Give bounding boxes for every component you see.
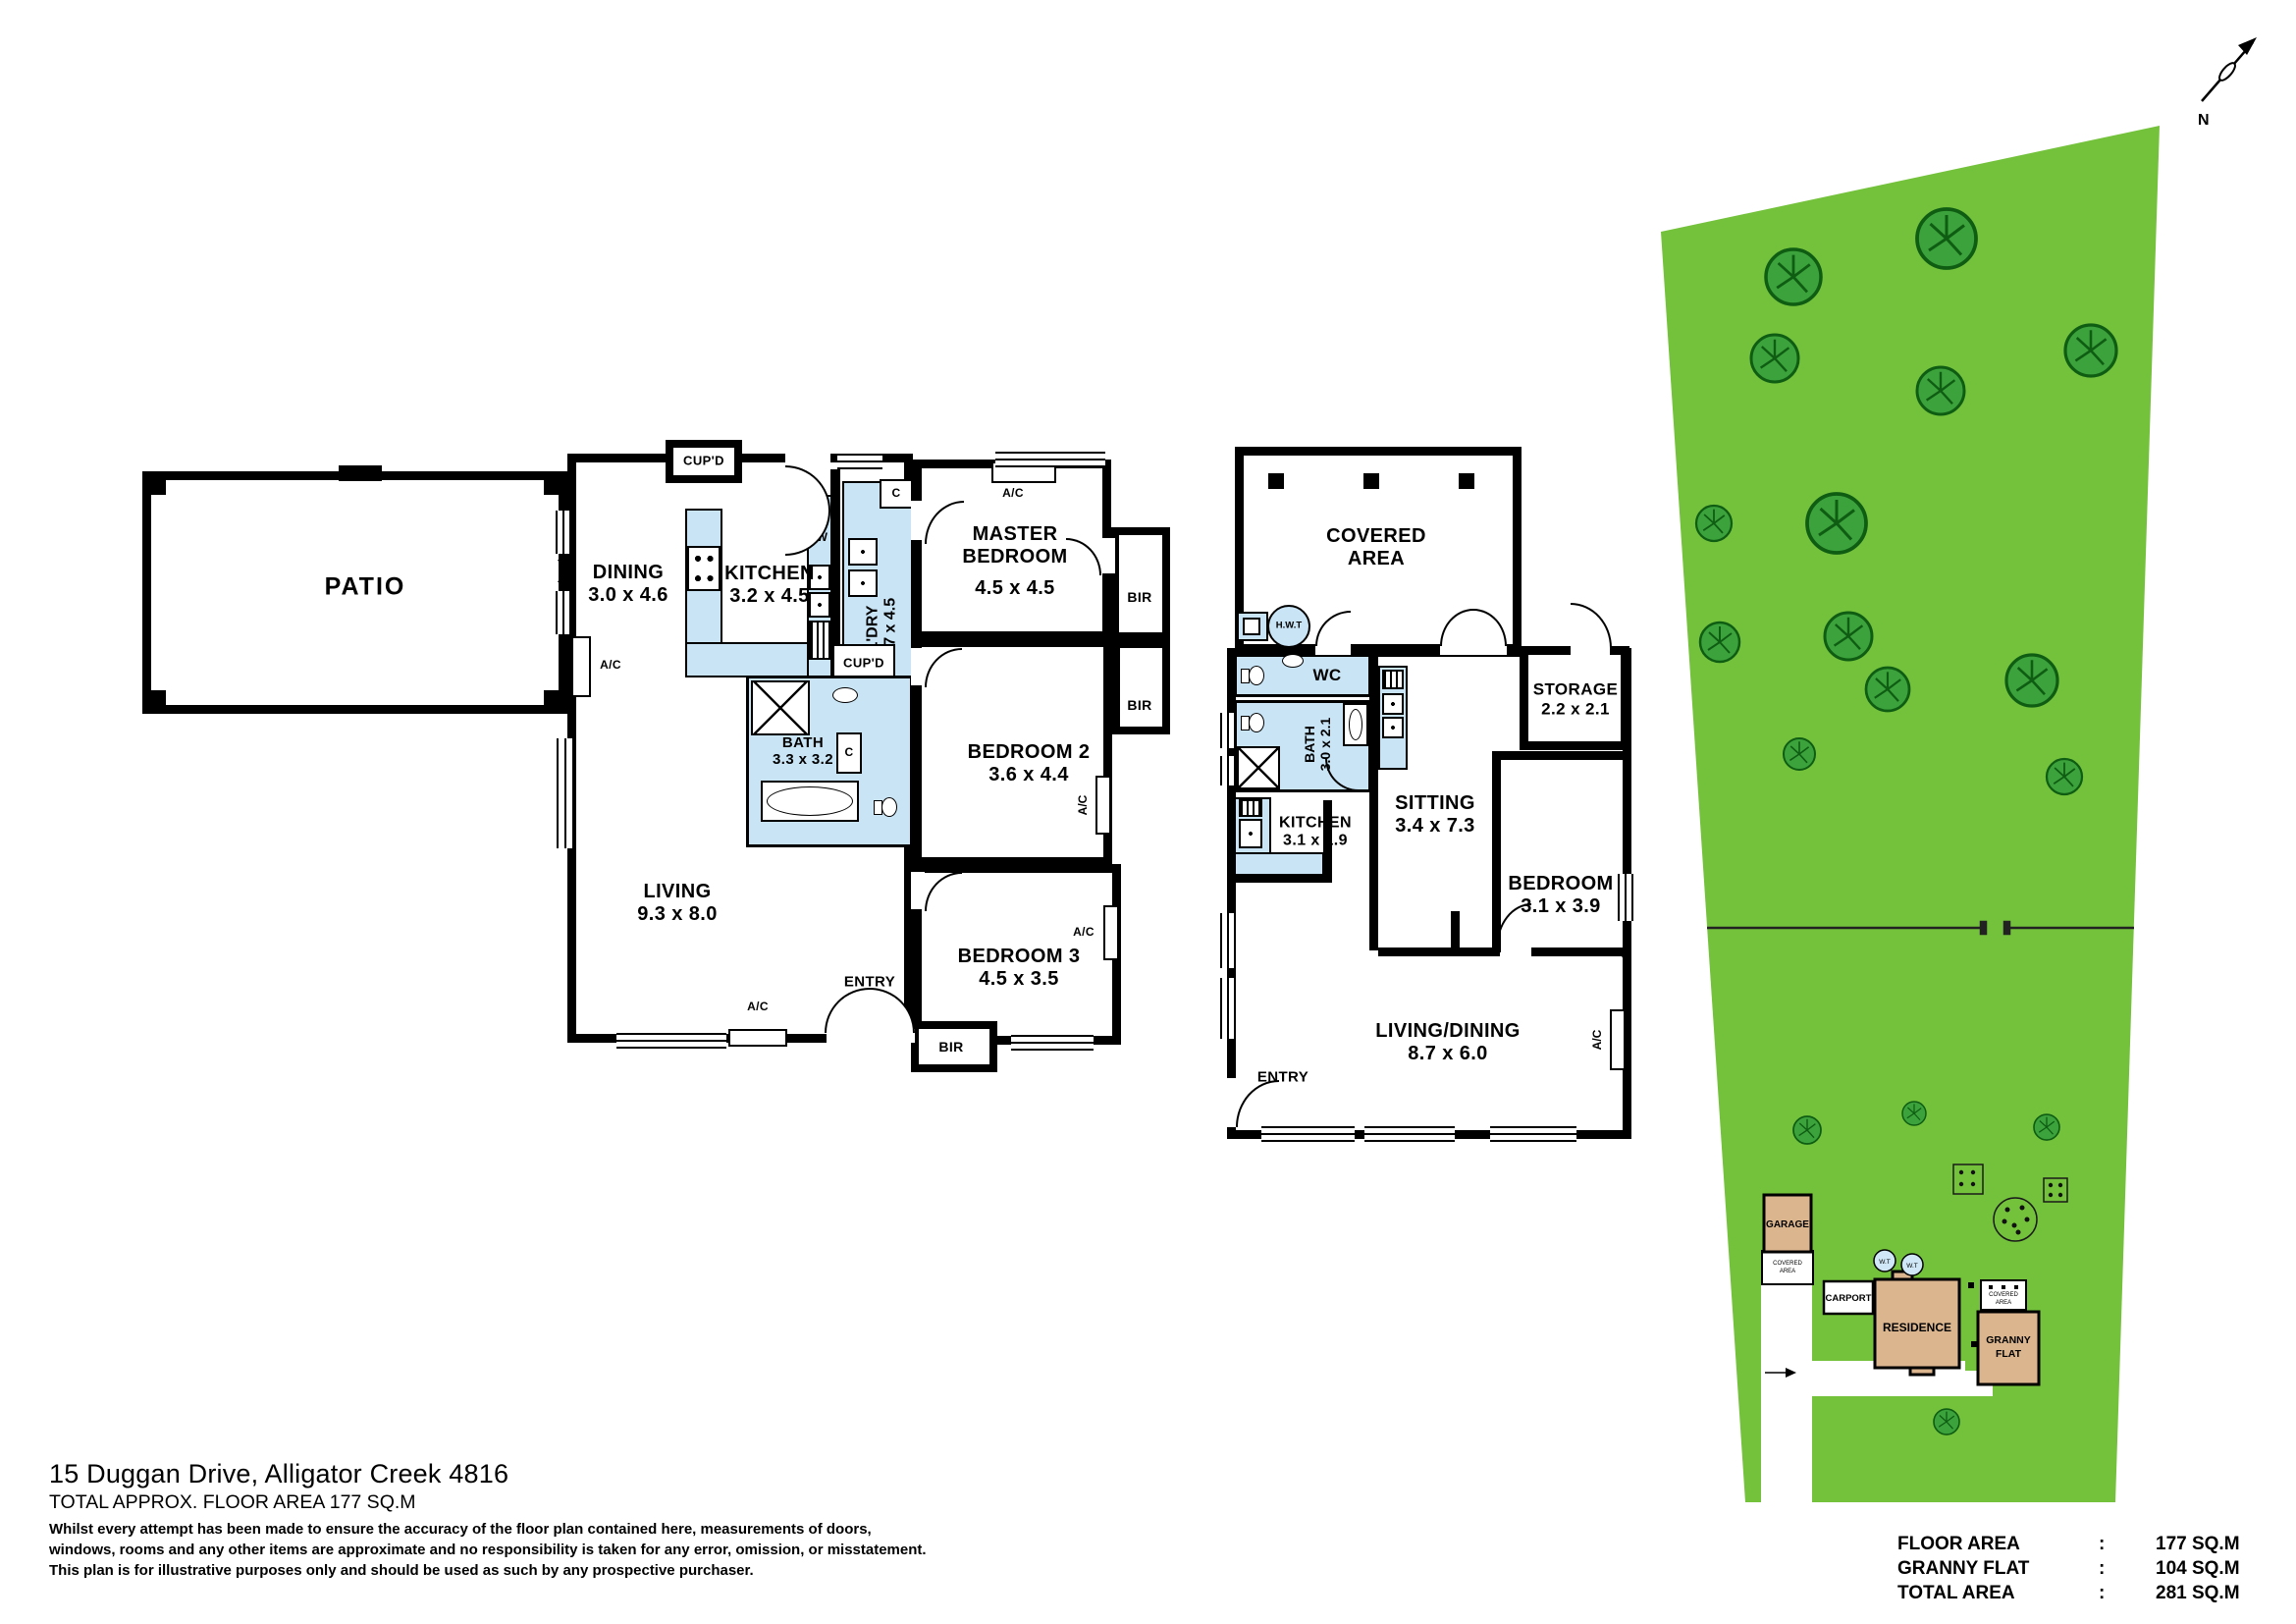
sitting-dim: 3.4 x 7.3 [1395, 815, 1475, 838]
stove-icon [687, 546, 721, 591]
areas-sep: : [2099, 1534, 2156, 1555]
ac-unit [1610, 1009, 1626, 1070]
wall [1451, 911, 1460, 956]
bir-bed3-label: BIR [938, 1039, 963, 1055]
window [1618, 874, 1633, 921]
total-area-line: TOTAL APPROX. FLOOR AREA 177 SQ.M [49, 1491, 416, 1514]
garage-label: GARAGE [1766, 1219, 1809, 1230]
granny-bedroom-label: BEDROOM 3.1 x 3.9 [1508, 873, 1613, 918]
window [616, 1033, 726, 1049]
door-gap [911, 648, 925, 685]
toilet-icon [874, 797, 899, 817]
disclaimer-line1: Whilst every attempt has been made to en… [49, 1519, 927, 1540]
wall-block [142, 690, 166, 714]
ac-bed2-label: A/C [1077, 795, 1091, 816]
granny-living-dim: 8.7 x 6.0 [1375, 1043, 1520, 1065]
dining-label: DINING 3.0 x 4.6 [588, 562, 667, 607]
window [1011, 1035, 1094, 1051]
areas-sep: : [2099, 1558, 2156, 1580]
ac-unit [571, 636, 591, 697]
window [1364, 1126, 1455, 1142]
granny-flat-label2: FLAT [1996, 1348, 2022, 1360]
garage-covered-area [1762, 1251, 1813, 1284]
areas-table: FLOOR AREA : 177 SQ.M GRANNY FLAT : 104 … [1897, 1532, 2283, 1605]
tree-icon [1807, 494, 1866, 553]
bir-master-room [1111, 527, 1170, 640]
arrow-down-icon [1621, 954, 1630, 963]
cupboard-c-label: C [891, 487, 900, 501]
wall-block [544, 690, 567, 714]
sitting-name: SITTING [1395, 792, 1475, 815]
tree-icon [1917, 367, 1964, 414]
wc-basin-icon [1282, 654, 1304, 668]
window [837, 454, 882, 469]
tree-icon [2065, 325, 2116, 376]
window [556, 591, 571, 634]
window [556, 511, 571, 554]
kitchen-label: KITCHEN 3.2 x 4.5 [724, 563, 815, 608]
ac-bed3-label: A/C [1073, 926, 1095, 940]
compass-north-icon: N [2184, 25, 2282, 133]
granny-flat-label1: GRANNY [1986, 1334, 2031, 1346]
wall [1323, 800, 1332, 883]
post-dot [2014, 1285, 2018, 1289]
window [1220, 713, 1236, 748]
wall-block [142, 471, 166, 495]
bath-name: BATH [773, 734, 833, 751]
window [1220, 913, 1236, 968]
covered-name2: AREA [1326, 548, 1426, 570]
bathtub-icon [761, 781, 859, 822]
wall [1492, 751, 1631, 760]
tree-icon [2006, 655, 2057, 706]
basin-icon [832, 687, 858, 703]
post-dot [2002, 1285, 2005, 1289]
door-arc [1571, 603, 1612, 648]
granny-bedroom-dim: 3.1 x 3.9 [1508, 895, 1613, 918]
drain-rack-icon [809, 621, 830, 660]
tree-icon [1866, 668, 1909, 711]
tree-icon [1696, 506, 1732, 541]
areas-row: GRANNY FLAT : 104 SQ.M [1897, 1556, 2283, 1581]
patio-label: PATIO [325, 573, 406, 602]
wall [1492, 751, 1501, 952]
post [1459, 473, 1474, 489]
bath-label: BATH 3.3 x 3.2 [773, 734, 833, 769]
storage-name: STORAGE [1533, 679, 1619, 699]
site-plan: COVERED AREA GARAGE CARPORT RESIDENCE CO… [1659, 118, 2174, 1507]
bedroom2-name: BEDROOM 2 [968, 741, 1091, 764]
hwt-label: H.W.T [1276, 622, 1302, 632]
living-dim: 9.3 x 8.0 [637, 903, 717, 926]
areas-value: 177 SQ.M [2156, 1534, 2283, 1555]
tree-icon [2047, 759, 2082, 794]
wall-block [544, 471, 567, 495]
compass-north-label: N [2198, 112, 2210, 129]
areas-label: TOTAL AREA [1897, 1583, 2099, 1604]
disclaimer-line3: This plan is for illustrative purposes o… [49, 1560, 927, 1581]
cupboard-top-label: CUP'D [683, 455, 724, 469]
sitting-label: SITTING 3.4 x 7.3 [1395, 792, 1475, 838]
kitchen-dim: 3.2 x 4.5 [724, 585, 815, 608]
granny-bath-name: BATH [1302, 718, 1317, 772]
sink-icon [1382, 693, 1404, 715]
toilet-icon [1241, 713, 1266, 732]
living-name: LIVING [637, 881, 717, 903]
master-dim: 4.5 x 4.5 [962, 577, 1067, 600]
utility-dot [1968, 1282, 1974, 1288]
utility-dot [1971, 1341, 1977, 1347]
bath-dim: 3.3 x 3.2 [773, 751, 833, 768]
bir-bed2-room [1112, 640, 1170, 734]
door-gap [1101, 538, 1115, 573]
window [1490, 1126, 1576, 1142]
areas-row: FLOOR AREA : 177 SQ.M [1897, 1532, 2283, 1556]
bedroom3-dim: 4.5 x 3.5 [958, 968, 1081, 991]
tree-icon [1825, 613, 1872, 660]
door-gap [911, 872, 925, 909]
bedroom3-name: BEDROOM 3 [958, 946, 1081, 968]
wall [1234, 874, 1332, 883]
tree-icon [1751, 335, 1798, 382]
post [1268, 473, 1284, 489]
tree-icon [1902, 1102, 1926, 1125]
tree-icon [1700, 623, 1739, 662]
living-label: LIVING 9.3 x 8.0 [637, 881, 717, 926]
post [1363, 473, 1379, 489]
wall [1369, 651, 1378, 950]
bir-master-label: BIR [1127, 589, 1151, 605]
ac-unit [728, 1029, 787, 1047]
storage-dim: 2.2 x 2.1 [1533, 699, 1619, 719]
water-tank-label: W.T [1906, 1263, 1918, 1270]
granny-living-name: LIVING/DINING [1375, 1020, 1520, 1043]
shower-icon [1237, 746, 1280, 789]
wall [1378, 947, 1500, 956]
kitchen-sink-icon [1239, 819, 1262, 848]
drain-rack-icon [1239, 799, 1262, 817]
kitchen-name: KITCHEN [724, 563, 815, 585]
ac-unit [1095, 776, 1111, 835]
wc-label: WC [1312, 666, 1341, 685]
residence-label: RESIDENCE [1883, 1321, 1951, 1334]
areas-value: 104 SQ.M [2156, 1558, 2283, 1580]
window [1261, 1126, 1355, 1142]
granny-kitchen-label: KITCHEN 3.1 x 1.9 [1279, 815, 1352, 851]
toilet-icon [1241, 666, 1266, 685]
granny-living-label: LIVING/DINING 8.7 x 6.0 [1375, 1020, 1520, 1065]
storage-label: STORAGE 2.2 x 2.1 [1533, 679, 1619, 718]
garage-covered-label1: COVERED [1773, 1261, 1802, 1267]
window-arrow-line [1625, 925, 1627, 954]
bedroom2-dim: 3.6 x 4.4 [968, 764, 1091, 786]
areas-label: GRANNY FLAT [1897, 1558, 2099, 1580]
granny-kitchen-name: KITCHEN [1279, 815, 1352, 833]
drain-rack-icon [1382, 670, 1404, 689]
disclaimer: Whilst every attempt has been made to en… [49, 1519, 927, 1581]
dining-name: DINING [588, 562, 667, 584]
tree-icon [1784, 738, 1815, 770]
disclaimer-line2: windows, rooms and any other items are a… [49, 1540, 927, 1560]
granny-ac-label: A/C [1591, 1030, 1605, 1051]
arrow-down-icon [558, 560, 567, 568]
window [557, 738, 574, 848]
slider-arrow-line [562, 552, 564, 593]
master-name1: MASTER [962, 523, 1067, 546]
post-dot [1989, 1285, 1993, 1289]
water-tank-label: W.T [1879, 1259, 1891, 1266]
granny-covered-label1: COVERED [1989, 1292, 2018, 1298]
bedroom2-label: BEDROOM 2 3.6 x 4.4 [968, 741, 1091, 786]
granny-kitchen-dim: 3.1 x 1.9 [1279, 833, 1352, 850]
dining-dim: 3.0 x 4.6 [588, 584, 667, 607]
floor-plan-page: N PATIO CUP'D C L'DRY 1.7 x 4.5 CUP'D DW… [0, 0, 2296, 1624]
bedroom3-label: BEDROOM 3 4.5 x 3.5 [958, 946, 1081, 991]
dryer-icon [848, 569, 878, 597]
master-name2: BEDROOM [962, 546, 1067, 568]
bir-bed2-label: BIR [1127, 697, 1151, 713]
ac-unit [1103, 905, 1119, 960]
tub-unit-inner [1243, 618, 1260, 635]
granny-covered-label: COVERED AREA [1326, 525, 1426, 570]
window [995, 452, 1105, 467]
cupboard-mid-label: CUP'D [843, 657, 884, 672]
tree-icon [1793, 1116, 1821, 1144]
ac-living-label: A/C [747, 1001, 769, 1014]
areas-label: FLOOR AREA [1897, 1534, 2099, 1555]
wall [1531, 947, 1631, 956]
tree-icon [2034, 1114, 2059, 1140]
covered-name1: COVERED [1326, 525, 1426, 548]
window [1220, 756, 1236, 785]
door-gap [911, 501, 925, 540]
arrow-up-icon [558, 573, 567, 582]
wall-block [339, 465, 382, 481]
address-title: 15 Duggan Drive, Alligator Creek 4816 [49, 1459, 508, 1489]
window [1220, 978, 1236, 1039]
master-bedroom-label: MASTER BEDROOM 4.5 x 4.5 [962, 523, 1067, 600]
sink-icon [1382, 717, 1404, 738]
tree-icon [1917, 209, 1976, 268]
areas-row: TOTAL AREA : 281 SQ.M [1897, 1581, 2283, 1605]
ac-master-label: A/C [1002, 487, 1024, 501]
garage-covered-label2: AREA [1780, 1269, 1795, 1274]
bathtub-icon [1343, 703, 1368, 746]
granny-bedroom-name: BEDROOM [1508, 873, 1613, 895]
washer-icon [848, 538, 878, 566]
areas-sep: : [2099, 1583, 2156, 1604]
ac-dining-label: A/C [600, 659, 621, 673]
carport-label: CARPORT [1826, 1293, 1872, 1304]
granny-covered-label2: AREA [1996, 1300, 2011, 1306]
shower-icon [751, 680, 810, 735]
areas-value: 281 SQ.M [2156, 1583, 2283, 1604]
tree-icon [1766, 249, 1821, 304]
tree-icon [1934, 1409, 1959, 1435]
bath-c-label: C [844, 746, 853, 760]
